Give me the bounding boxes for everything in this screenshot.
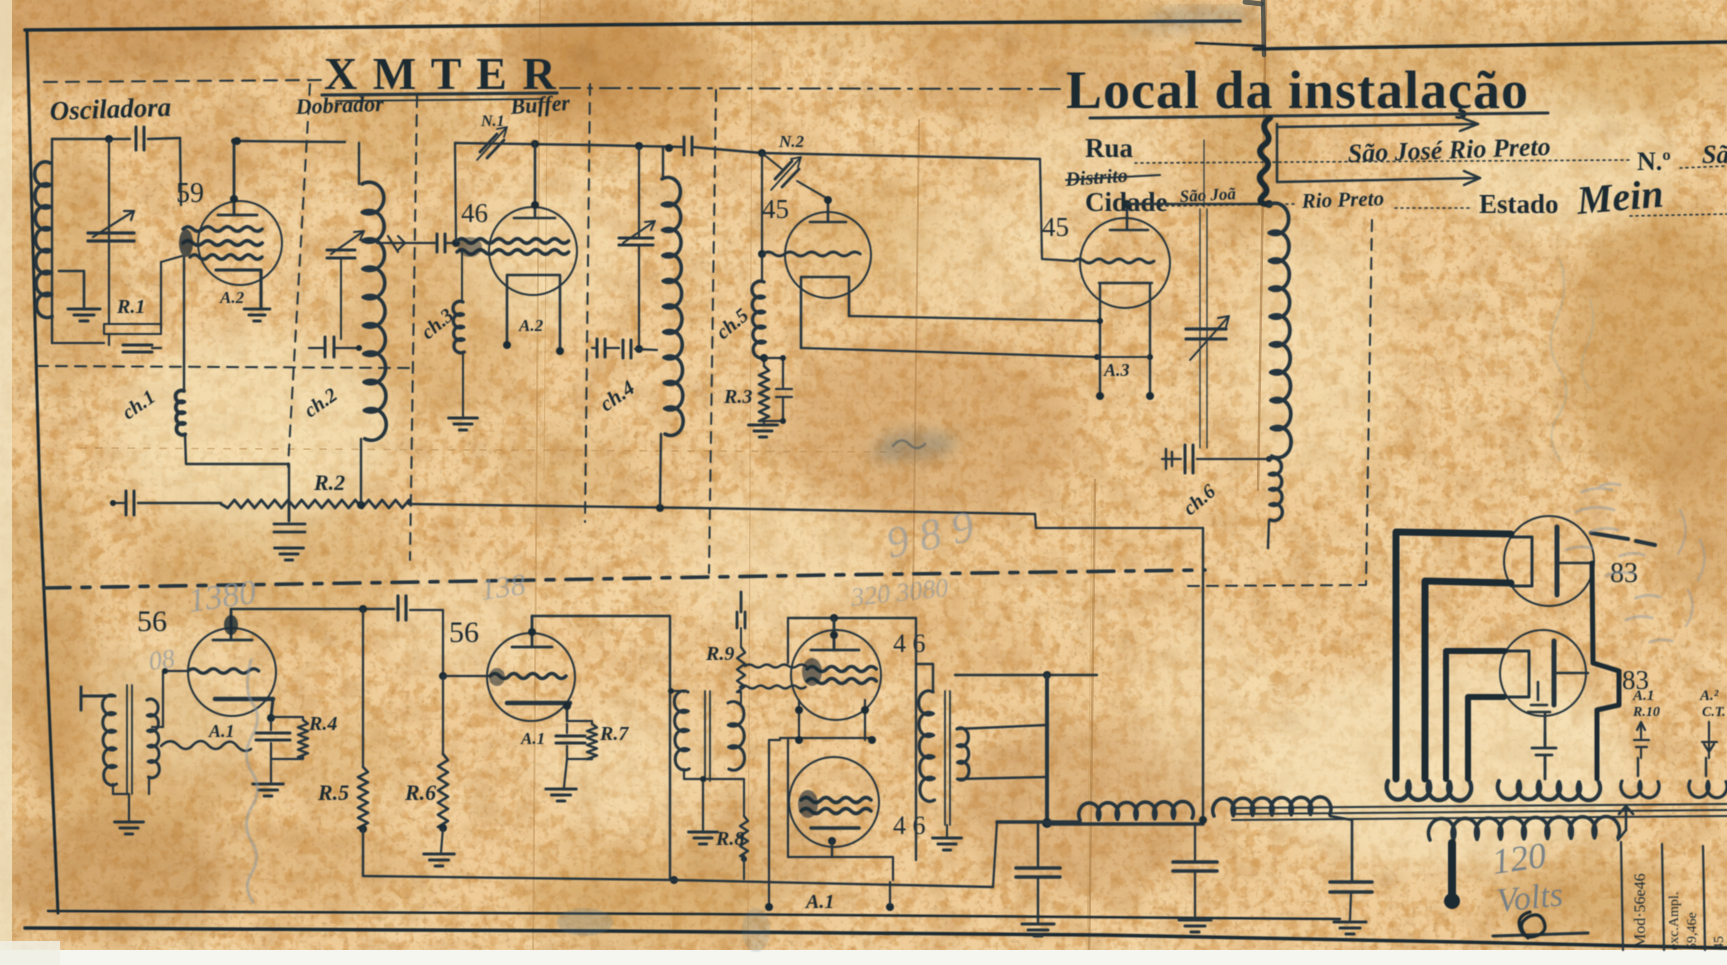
svg-text:Mein: Mein [1574,171,1665,223]
svg-text:A.1: A.1 [804,891,834,913]
svg-text:45: 45 [1712,936,1727,950]
svg-text:A.²: A.² [1699,688,1719,704]
svg-text:56: 56 [449,616,479,649]
svg-text:46: 46 [461,198,488,228]
svg-text:4 6: 4 6 [893,629,926,658]
svg-text:59,46e: 59,46e [1685,912,1700,950]
svg-text:exc.Ampl.: exc.Ampl. [1667,892,1682,950]
svg-text:R.3: R.3 [723,386,752,408]
svg-text:R.10: R.10 [1632,705,1660,720]
svg-text:Local da instalação: Local da instalação [1066,60,1529,120]
svg-text:R.6: R.6 [404,780,436,805]
svg-text:A.3: A.3 [1103,360,1130,380]
svg-text:45: 45 [1042,212,1069,242]
svg-text:A.1: A.1 [208,721,235,741]
svg-text:Sã: Sã [1702,140,1727,169]
svg-text:Osciladora: Osciladora [49,92,171,126]
svg-text:São Joã: São Joã [1179,184,1237,206]
svg-text:59: 59 [176,178,204,209]
svg-text:A.1: A.1 [1632,688,1654,704]
svg-text:120: 120 [1490,835,1549,882]
svg-text:R.5: R.5 [317,780,349,805]
svg-text:Buffer: Buffer [509,90,572,119]
svg-text:Dobrador: Dobrador [294,91,384,119]
svg-text:N.2: N.2 [778,132,805,151]
svg-text:R.9: R.9 [705,643,734,665]
svg-text:A.2: A.2 [518,316,544,335]
svg-text:R.4: R.4 [308,713,337,735]
svg-text:R.8: R.8 [715,828,744,850]
svg-text:45: 45 [762,194,789,224]
svg-text:138: 138 [478,568,527,607]
svg-text:A.2: A.2 [219,288,245,307]
svg-text:4 6: 4 6 [893,811,926,840]
svg-text:A.1: A.1 [520,729,545,748]
svg-text:C.T.: C.T. [1702,705,1726,720]
svg-text:R.1: R.1 [116,296,145,318]
svg-text:Rio Preto: Rio Preto [1300,186,1384,213]
svg-text:Estado: Estado [1479,189,1559,219]
svg-text:Rua: Rua [1085,133,1134,163]
svg-text:R.7: R.7 [599,723,629,745]
svg-text:56: 56 [137,605,167,638]
svg-text:Mod·56e46: Mod·56e46 [1632,873,1649,948]
svg-text:R.2: R.2 [313,470,345,495]
